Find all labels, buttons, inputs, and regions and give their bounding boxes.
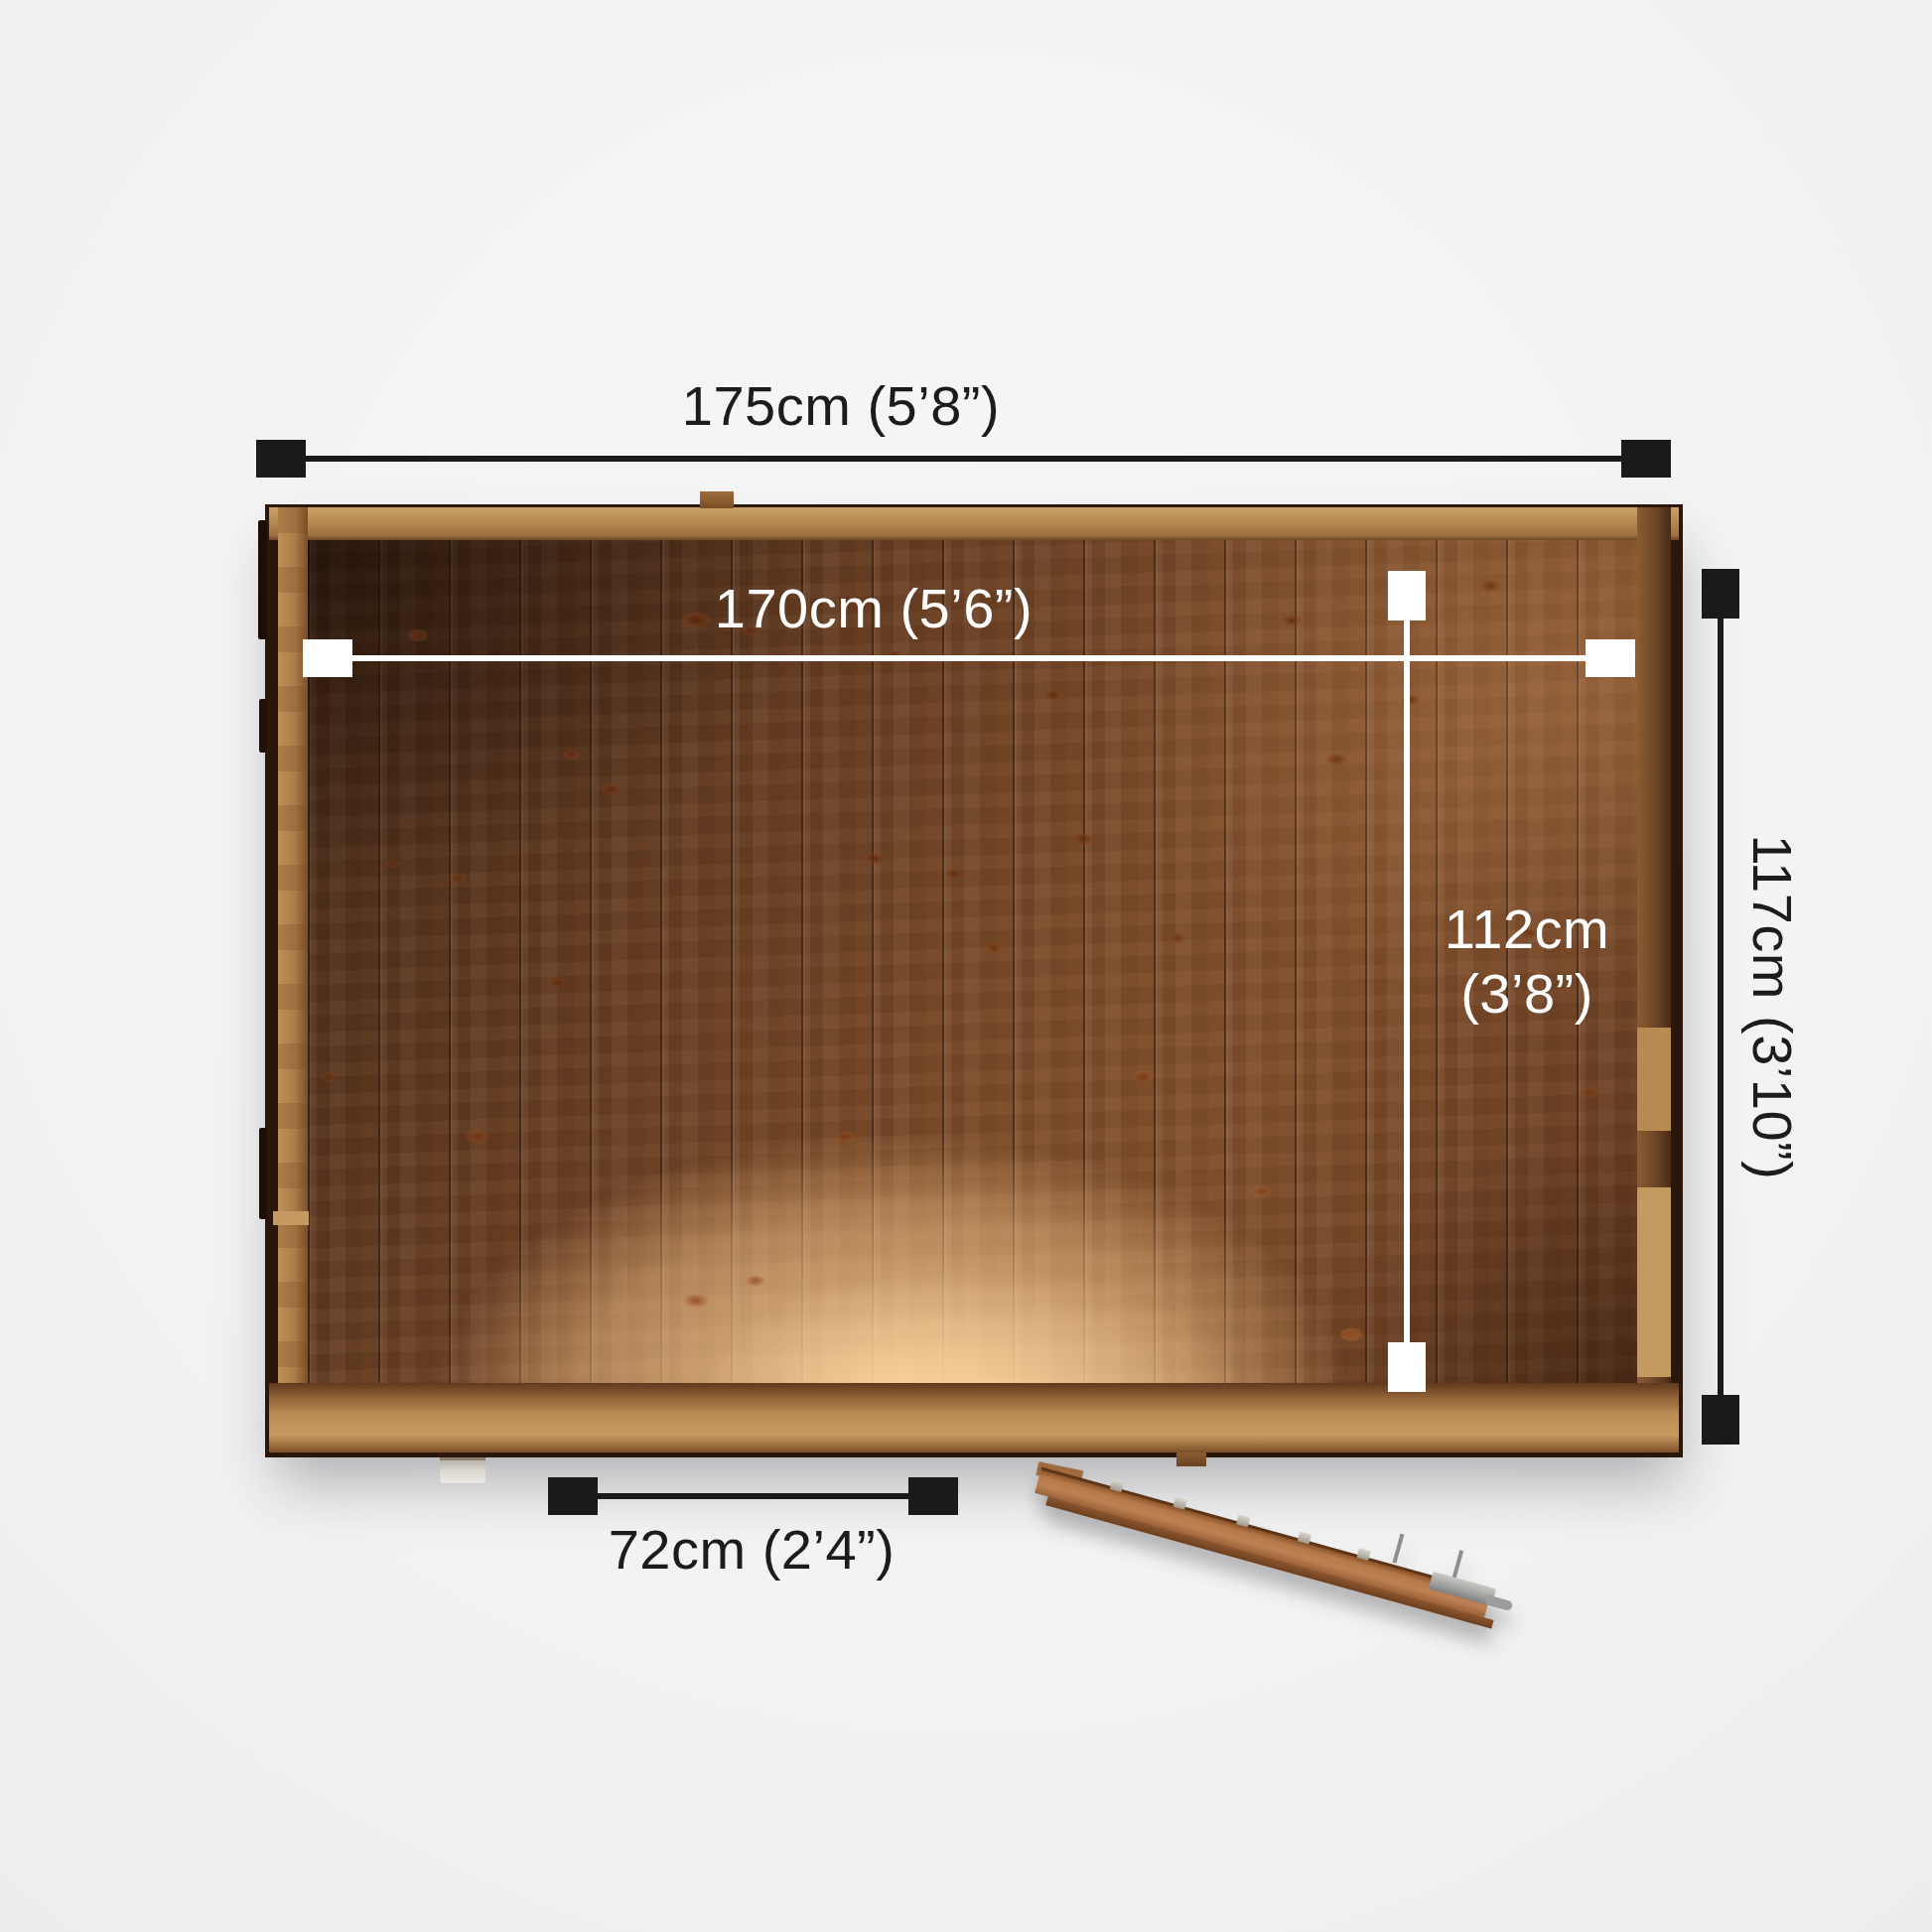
arrowhead-up-icon: [1702, 569, 1739, 619]
metal-hook-icon: [1486, 1595, 1514, 1612]
left-edge-hinge: [259, 699, 267, 753]
internal-width-label: 170cm (5’6”): [526, 576, 1221, 640]
arrow-shaft: [1718, 619, 1724, 1395]
arrow-shaft: [598, 1493, 908, 1499]
door-width-label: 72cm (2’4”): [503, 1517, 1000, 1582]
arrowhead-down-icon: [1702, 1395, 1739, 1445]
detached-trim-plank: [1026, 1457, 1509, 1653]
shed-frame-bottom: [269, 1383, 1679, 1452]
arrowhead-left-icon: [548, 1477, 598, 1515]
arrowhead-left-icon: [256, 440, 306, 478]
internal-width-arrow: [303, 639, 1635, 677]
internal-depth-arrow: [1388, 571, 1426, 1392]
arrowhead-right-icon: [1586, 639, 1635, 677]
diagram-canvas: 175cm (5’8”) 170cm (5’6”) 112cm (3’8”) 1…: [0, 0, 1932, 1932]
left-edge-hinge: [259, 1128, 267, 1219]
overall-depth-arrow: [1702, 569, 1739, 1445]
arrowhead-right-icon: [908, 1477, 958, 1515]
overall-depth-label-text: 117cm (3’10”): [1741, 834, 1806, 1179]
arrowhead-left-icon: [303, 639, 352, 677]
arrow-shaft: [1404, 621, 1410, 1342]
frame-wood-patch: [1637, 1028, 1671, 1132]
plank-board-edge: [1045, 1496, 1493, 1628]
door-width-arrow: [548, 1477, 958, 1515]
internal-depth-label: 112cm (3’8”): [1428, 897, 1626, 1027]
arrow-shaft: [306, 456, 1621, 462]
metal-latch: [440, 1457, 485, 1483]
overall-width-arrow: [256, 440, 1671, 478]
arrowhead-down-icon: [1388, 1342, 1426, 1392]
arrowhead-right-icon: [1621, 440, 1671, 478]
internal-depth-label-line1: 112cm: [1428, 897, 1626, 962]
internal-depth-label-line2: (3’8”): [1428, 962, 1626, 1027]
plank-board: [1035, 1467, 1491, 1618]
metal-pin-icon: [1393, 1534, 1405, 1564]
shed-frame-top: [269, 507, 1679, 540]
bottom-edge-tab: [1176, 1452, 1206, 1466]
overall-width-label: 175cm (5’8”): [493, 373, 1188, 438]
arrowhead-up-icon: [1388, 571, 1426, 621]
top-edge-tab: [700, 491, 734, 508]
metal-pin-icon: [1451, 1550, 1463, 1580]
left-frame-notch: [273, 1211, 309, 1225]
frame-wood-patch: [1637, 1187, 1671, 1376]
shed-frame-right: [1637, 507, 1671, 1452]
left-edge-hinge: [258, 520, 267, 639]
